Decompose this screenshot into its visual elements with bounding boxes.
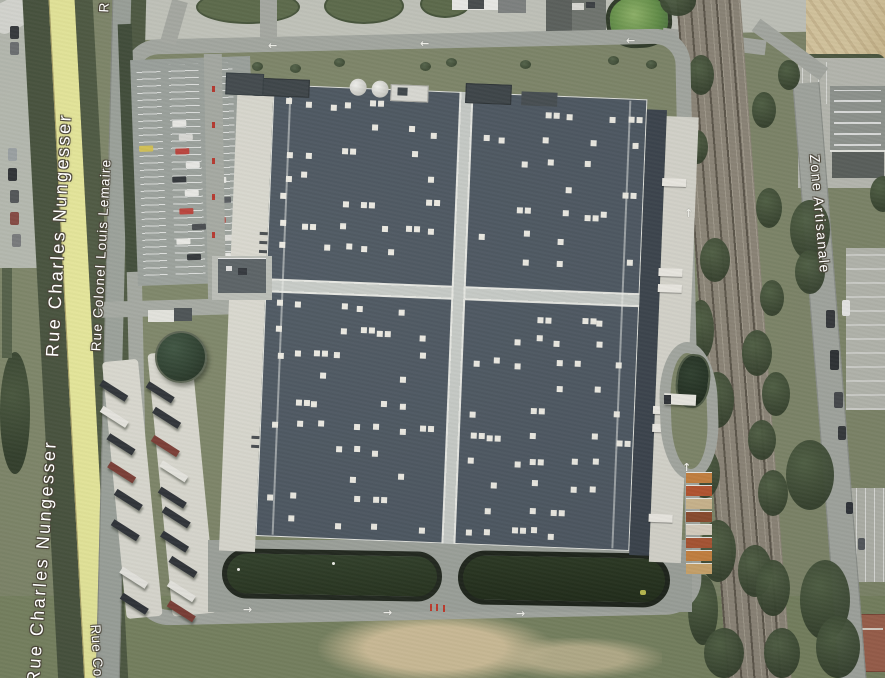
industrial-units <box>832 152 884 178</box>
dock-trailer <box>658 268 682 277</box>
basin-object <box>640 590 646 595</box>
bird-dot <box>237 568 240 571</box>
rooftop-unit <box>572 3 584 10</box>
parked-car <box>172 120 186 126</box>
parked-car <box>172 176 186 182</box>
hedge <box>2 268 12 358</box>
parked-car <box>186 162 200 168</box>
pallet-stack-item <box>686 563 712 574</box>
roof-vents <box>834 90 881 146</box>
parked-truck-trailer <box>167 600 196 622</box>
building-fragment <box>498 0 526 13</box>
truck-cab <box>664 395 671 404</box>
dock-door <box>259 250 267 253</box>
tree <box>756 188 782 228</box>
dock-trailer <box>662 178 686 187</box>
office-annex-roof <box>218 258 266 293</box>
parked-car <box>10 42 19 55</box>
dock-door <box>251 436 259 439</box>
parked-car <box>185 190 199 196</box>
dock-door <box>259 241 267 244</box>
pallet-stacks <box>684 472 716 578</box>
circular-pond <box>155 331 207 383</box>
parked-car <box>10 190 19 203</box>
warehouse <box>219 83 700 577</box>
dirt-patch-small <box>492 638 662 678</box>
dock-door <box>260 232 268 235</box>
parked-car <box>10 26 19 39</box>
parked-truck-trailer <box>106 433 135 455</box>
parked-car <box>8 148 17 161</box>
pallet-stack-item <box>686 472 712 483</box>
parked-truck-trailer <box>119 567 148 589</box>
dock-trailer <box>658 284 682 293</box>
tree <box>752 92 776 128</box>
pallet-stack-item <box>686 524 712 535</box>
gatehouse-roof <box>174 308 192 321</box>
parked-car <box>10 212 19 225</box>
sand-streaks <box>806 0 885 60</box>
street-label-rue-co-partial: Rue Co <box>88 624 106 678</box>
parked-truck-trailer <box>100 406 129 428</box>
building-north-dark-half <box>546 0 572 34</box>
parked-car <box>175 148 189 154</box>
parked-truck-trailer <box>167 580 196 602</box>
parked-truck-trailer <box>151 435 180 457</box>
street-label-partial-top: R <box>96 1 112 13</box>
parked-car <box>8 168 17 181</box>
pallet-stack-item <box>686 498 712 509</box>
dock-trailers <box>219 83 700 577</box>
entrance-stub <box>260 0 277 38</box>
parked-truck-trailer <box>146 381 175 403</box>
dock-trailer <box>648 514 672 523</box>
parked-truck-trailer <box>111 519 140 541</box>
building-fragment <box>468 0 484 9</box>
storage-marks <box>846 248 885 410</box>
parked-car <box>179 208 193 214</box>
parked-truck-trailer <box>162 506 191 528</box>
dock-door <box>251 445 259 448</box>
parked-truck-trailer <box>114 489 143 511</box>
satellite-map-canvas[interactable]: ←←←↑↑→→→ Rue Charles Nungesser Rue Charl… <box>0 0 885 678</box>
parked-truck-trailer <box>152 407 181 429</box>
gatehouse <box>148 310 174 322</box>
parked-car <box>176 238 190 244</box>
pallet-stack-item <box>686 511 712 522</box>
parked-truck-trailer <box>99 380 128 402</box>
parked-truck-trailer <box>160 531 189 553</box>
rooftop-unit <box>238 268 247 275</box>
parked-car <box>192 224 206 230</box>
rooftop-unit <box>586 2 595 8</box>
parked-car <box>187 254 201 260</box>
parked-truck-trailer <box>159 460 188 482</box>
rooftop-unit <box>226 266 232 271</box>
parked-truck-trailer <box>107 461 136 483</box>
parked-car <box>12 234 21 247</box>
parked-truck-trailer <box>168 556 197 578</box>
parked-truck-trailer <box>158 487 187 509</box>
pallet-stack-item <box>686 550 712 561</box>
pallet-stack-item <box>686 485 712 496</box>
parked-car <box>179 134 193 140</box>
parked-car <box>139 145 153 151</box>
pallet-stack-item <box>686 537 712 548</box>
tree <box>0 352 30 474</box>
parked-truck-trailer <box>120 593 149 615</box>
